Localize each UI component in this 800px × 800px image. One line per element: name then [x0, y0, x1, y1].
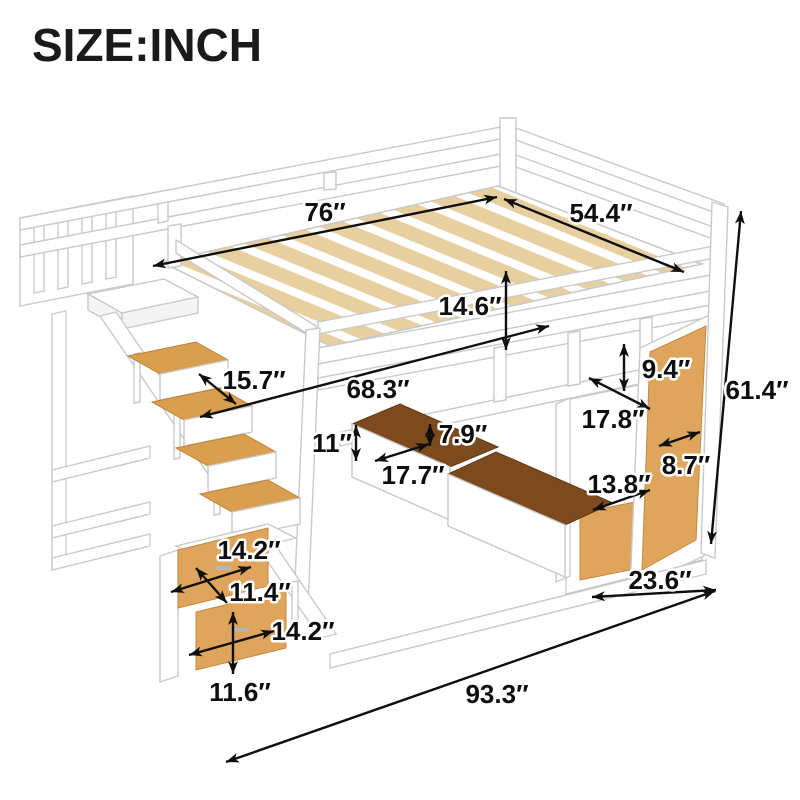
dimension-label: 11.6″	[209, 677, 271, 707]
dimension-label: 54.4″	[569, 198, 632, 228]
dimension-label: 68.3″	[346, 374, 409, 404]
cubby-divider	[568, 331, 580, 386]
dimension-label: 14.2″	[217, 535, 280, 565]
railing-slat	[34, 223, 44, 293]
storage-step-side-panel	[160, 550, 178, 682]
dimension-label: 23.6″	[628, 565, 691, 595]
cubby-divider	[494, 346, 506, 402]
dimension-label: 93.3″	[465, 679, 528, 709]
dimension-label: 17.8″	[581, 404, 644, 434]
dimension-label: 11.4″	[229, 577, 291, 607]
dimension-drawer-section-height: 11″	[312, 425, 356, 461]
dimension-label: 14.6″	[438, 291, 501, 321]
dimension-label: 14.2″	[271, 616, 334, 646]
product-dimension-diagram: SIZE:INCH	[0, 0, 800, 800]
dimension-label: 17.7″	[381, 460, 444, 490]
dimension-label: 13.8″	[587, 469, 650, 499]
drawer-handle	[233, 628, 249, 632]
loft-bed-illustration: 76″ 54.4″ 14.6″ 15.7″ 68.3″ 9.4″ 17.8″	[0, 0, 800, 800]
drawer-handle	[215, 566, 231, 570]
dimension-label: 7.9″	[439, 419, 488, 449]
dimension-label: 11″	[312, 428, 352, 458]
railing-slat	[58, 219, 68, 289]
bed-platform	[162, 186, 716, 390]
guardrail-baluster	[324, 172, 336, 190]
dimension-label: 9.4″	[642, 354, 691, 384]
guardrail-baluster	[158, 202, 168, 223]
dimension-label: 76″	[304, 197, 345, 227]
stair-baluster	[174, 411, 180, 459]
front-left-leg	[294, 328, 320, 606]
railing-slat	[106, 209, 116, 279]
dimension-label: 15.7″	[222, 365, 285, 395]
dimension-label: 61.4″	[725, 375, 788, 405]
dimension-label: 8.7″	[662, 450, 711, 480]
dimension-drawer-height: 7.9″	[430, 419, 487, 449]
railing-slat	[82, 214, 92, 284]
